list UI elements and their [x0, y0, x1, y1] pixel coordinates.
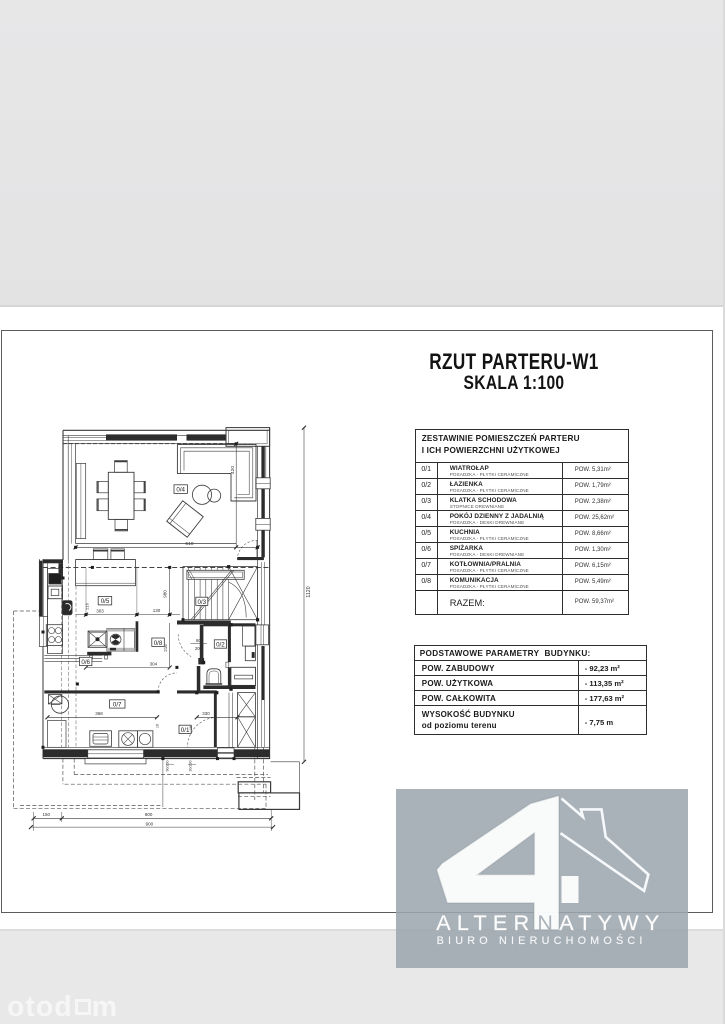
- svg-text:216: 216: [163, 644, 168, 652]
- svg-text:1120: 1120: [306, 586, 312, 597]
- svg-text:200: 200: [195, 646, 203, 651]
- svg-text:N: N: [537, 911, 553, 935]
- svg-text:610: 610: [185, 541, 193, 547]
- svg-text:980: 980: [163, 590, 168, 598]
- svg-text:0/7: 0/7: [113, 702, 122, 709]
- svg-text:30/230: 30/230: [189, 761, 193, 772]
- svg-text:16: 16: [156, 724, 160, 728]
- svg-text:368: 368: [95, 711, 103, 716]
- svg-text:0/8: 0/8: [154, 640, 163, 647]
- svg-text:0/6: 0/6: [81, 659, 90, 666]
- svg-text:80: 80: [196, 638, 201, 643]
- svg-text:150: 150: [43, 812, 51, 817]
- svg-text:900: 900: [146, 821, 154, 826]
- svg-text:216: 216: [85, 602, 90, 609]
- svg-text:90/230: 90/230: [165, 761, 169, 772]
- svg-text:0/4: 0/4: [176, 487, 185, 494]
- svg-text:800: 800: [145, 812, 153, 817]
- svg-text:130: 130: [153, 608, 161, 613]
- svg-text:330: 330: [202, 711, 210, 716]
- svg-text:ATYWY: ATYWY: [559, 911, 665, 935]
- svg-text:BIURO NIERUCHOMOŚCI: BIURO NIERUCHOMOŚCI: [437, 934, 647, 947]
- svg-text:0/3: 0/3: [197, 599, 206, 606]
- svg-text:0/5: 0/5: [101, 598, 110, 605]
- svg-text:304: 304: [150, 661, 158, 666]
- svg-text:0/2: 0/2: [216, 642, 225, 649]
- svg-text:16: 16: [189, 726, 193, 730]
- svg-text:420: 420: [230, 466, 236, 474]
- svg-text:ALTER: ALTER: [436, 911, 535, 935]
- svg-text:303: 303: [96, 608, 104, 613]
